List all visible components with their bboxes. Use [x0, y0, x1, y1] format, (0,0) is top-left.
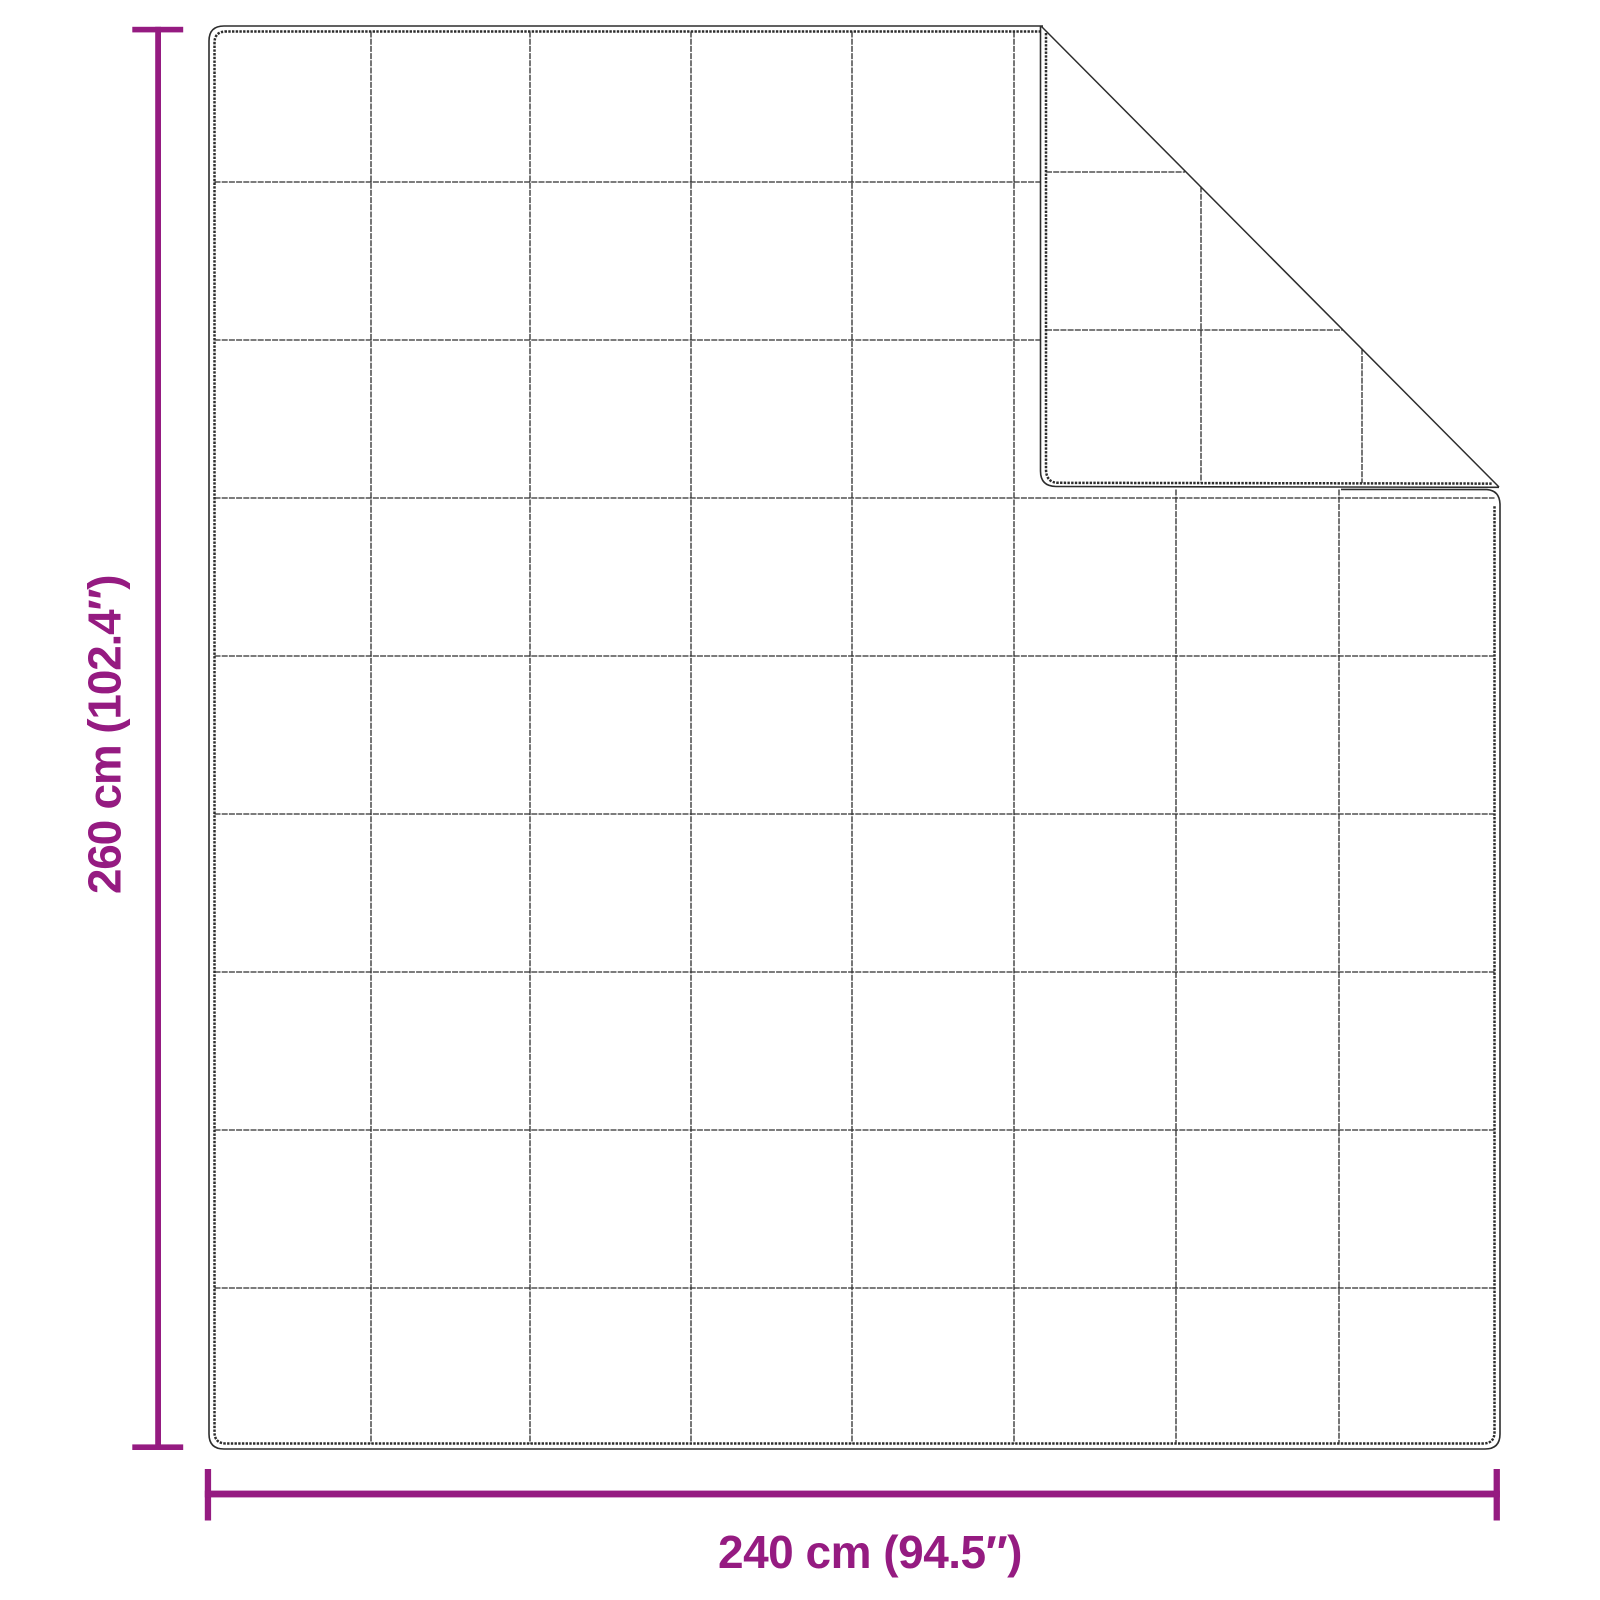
- svg-text:260 cm (102.4″): 260 cm (102.4″): [79, 576, 131, 895]
- svg-text:240 cm (94.5″): 240 cm (94.5″): [718, 1526, 1022, 1578]
